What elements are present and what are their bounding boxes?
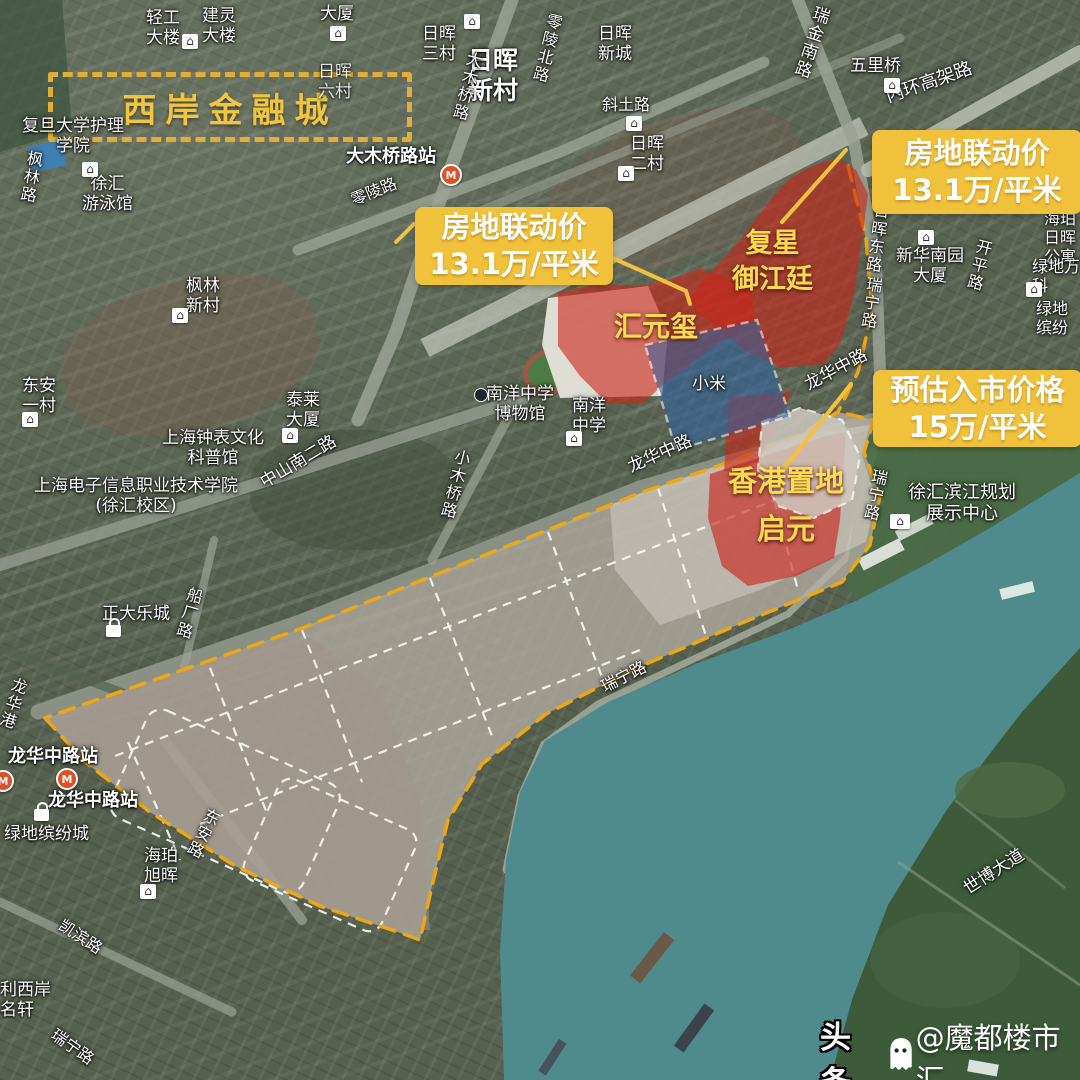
land-housing-linkage-price-2-callout: 房地联动价13.1万/平米 — [872, 130, 1080, 214]
watermark: 头条 @魔都楼市汇 — [820, 1012, 1080, 1080]
watermark-handle: @魔都楼市汇 — [916, 1015, 1080, 1080]
callouts-layer: 房地联动价13.1万/平米房地联动价13.1万/平米预估入市价格15万/平米 — [0, 0, 1080, 1080]
satellite-map: 西岸金融城 轻工 大楼建灵 大楼大厦日晖 三村日晖 新村日晖 新城日晖 六村复旦… — [0, 0, 1080, 1080]
estimated-market-entry-price-callout: 预估入市价格15万/平米 — [873, 370, 1080, 447]
land-housing-linkage-price-1-callout: 房地联动价13.1万/平米 — [415, 207, 613, 285]
ghost-icon — [887, 1037, 914, 1077]
watermark-prefix: 头条 — [820, 1012, 879, 1080]
